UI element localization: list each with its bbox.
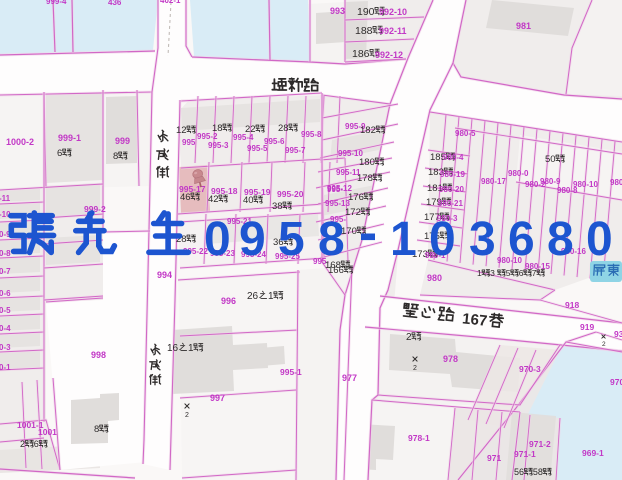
svg-text:978: 978 [443,354,458,364]
svg-text:166: 166 [328,265,344,276]
svg-text:402-1: 402-1 [160,0,181,5]
svg-text:999-4: 999-4 [46,0,67,6]
svg-text:980-0: 980-0 [508,169,529,178]
svg-text:8: 8 [318,213,345,266]
svg-text:995-20: 995-20 [277,189,304,199]
svg-text:178: 178 [357,173,373,184]
svg-text:971-2: 971-2 [529,439,551,449]
svg-text:980-: 980- [610,178,622,187]
svg-text:1001: 1001 [38,427,57,437]
svg-text:7: 7 [532,268,537,278]
svg-text:2: 2 [602,341,606,348]
svg-text:5: 5 [506,268,511,278]
svg-text:992-12: 992-12 [375,50,403,60]
svg-text:180: 180 [359,157,375,168]
svg-text:980-5: 980-5 [455,129,476,138]
svg-text:172: 172 [345,207,361,218]
svg-text:190: 190 [357,6,375,18]
svg-text:981: 981 [516,21,531,31]
svg-text:2: 2 [406,332,412,343]
svg-text:18: 18 [212,123,223,134]
svg-text:1: 1 [188,343,194,354]
svg-text:977: 977 [342,373,357,383]
svg-text:56: 56 [514,467,524,477]
svg-text:22: 22 [245,124,256,135]
svg-text:1000-2: 1000-2 [6,137,34,147]
svg-text:980-9: 980-9 [540,177,561,186]
svg-text:167: 167 [461,310,488,330]
svg-text:16: 16 [167,343,179,354]
svg-text:2: 2 [20,439,25,449]
svg-text:0: 0 [204,213,231,266]
svg-text:980-21: 980-21 [438,199,463,208]
svg-text:6: 6 [519,268,524,278]
svg-text:995-1: 995-1 [280,367,302,377]
svg-text:995-8: 995-8 [301,130,322,139]
svg-text:993: 993 [330,6,345,16]
svg-text:971-1: 971-1 [514,449,536,459]
svg-text:38: 38 [272,201,283,212]
svg-text:980-20: 980-20 [439,185,464,194]
svg-text:6: 6 [508,213,535,266]
svg-text:995: 995 [182,138,196,147]
svg-text:0-5: 0-5 [0,306,11,315]
svg-text:0-4: 0-4 [0,324,11,333]
svg-text:980: 980 [427,273,442,283]
svg-text:995-3: 995-3 [208,141,229,150]
svg-text:0-6: 0-6 [0,289,11,298]
svg-text:-11: -11 [0,194,11,203]
svg-text:978-1: 978-1 [408,433,430,443]
svg-text:995-6: 995-6 [264,137,285,146]
svg-text:2: 2 [413,365,417,372]
svg-text:992-10: 992-10 [379,7,407,17]
svg-text:3: 3 [469,213,496,266]
svg-text:176: 176 [348,192,364,203]
svg-text:8: 8 [547,213,574,266]
svg-text:970-3: 970-3 [519,364,541,374]
svg-text:0-8: 0-8 [0,249,11,258]
svg-text:26: 26 [247,291,259,302]
svg-text:995-7: 995-7 [285,146,306,155]
svg-text:93: 93 [614,329,622,339]
svg-text:5: 5 [278,213,305,266]
svg-text:999-2: 999-2 [84,204,106,214]
svg-text:8: 8 [113,151,118,162]
svg-text:12: 12 [176,125,187,136]
svg-text:997: 997 [210,393,225,403]
svg-text:1: 1 [477,268,482,278]
svg-text:980-17: 980-17 [481,177,506,186]
svg-text:980-19: 980-19 [440,170,465,179]
svg-text:6: 6 [34,439,39,449]
svg-text:182: 182 [360,125,376,136]
svg-text:28: 28 [278,123,289,134]
svg-text:42: 42 [208,194,219,205]
svg-text:992-11: 992-11 [379,26,407,36]
svg-text:0-3: 0-3 [0,343,11,352]
svg-text:999-1: 999-1 [58,133,81,143]
svg-text:2: 2 [185,412,189,419]
svg-text:436: 436 [108,0,122,7]
svg-text:980-10: 980-10 [573,180,598,189]
svg-text:0-1: 0-1 [0,363,11,372]
svg-text:998: 998 [91,350,106,360]
svg-text:0: 0 [586,213,613,266]
svg-text:50: 50 [545,154,556,165]
svg-text:40: 40 [243,195,254,206]
svg-text:9: 9 [239,213,266,266]
svg-text:8: 8 [94,424,99,435]
svg-text:969-1: 969-1 [582,448,604,458]
svg-text:994: 994 [157,270,172,280]
svg-text:1: 1 [390,213,417,266]
svg-text:970: 970 [610,377,622,387]
svg-text:58: 58 [533,467,543,477]
svg-text:918: 918 [565,300,579,310]
svg-text:186: 186 [352,48,370,60]
svg-text:0-7: 0-7 [0,267,11,276]
svg-text:996: 996 [221,296,236,306]
svg-text:6: 6 [57,148,62,159]
svg-text:188: 188 [355,25,373,37]
svg-text:3: 3 [490,268,495,278]
svg-text:980-4: 980-4 [443,153,464,162]
svg-text:1: 1 [268,291,274,302]
svg-text:46: 46 [180,192,191,203]
svg-text:0: 0 [429,213,456,266]
svg-text:971: 971 [487,453,501,463]
svg-text:919: 919 [580,322,594,332]
svg-text:999: 999 [115,136,130,146]
